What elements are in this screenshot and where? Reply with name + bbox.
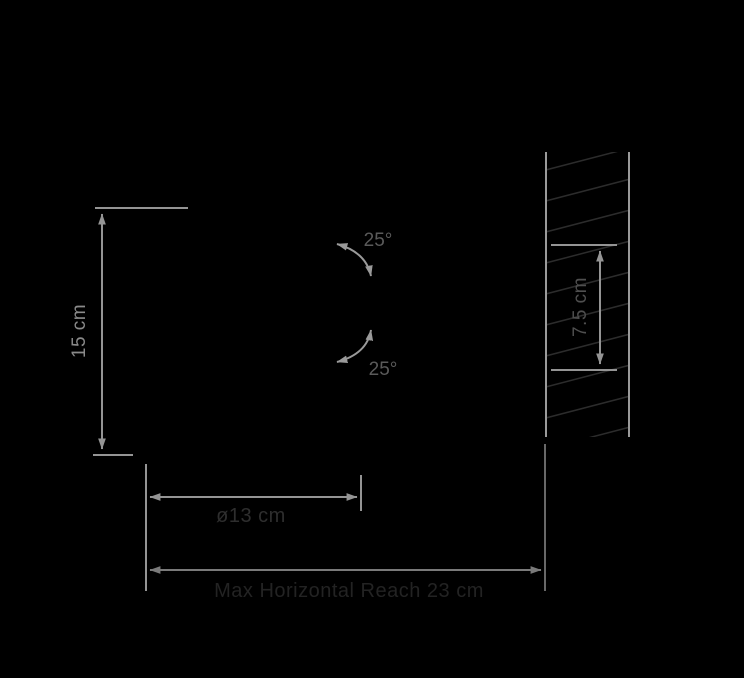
reach-dimension-label: Max Horizontal Reach 23 cm (214, 580, 484, 602)
height-dimension-label: 15 cm (69, 304, 90, 358)
tilt-down-arc-arrow (337, 330, 371, 362)
wall-lamp-dimension-diagram: 15 cm 25° 25° 7.5 cm ø13 cm (0, 0, 744, 678)
bracket-dimension-label: 7.5 cm (570, 277, 591, 337)
tilt-down-angle-label: 25° (369, 359, 398, 380)
diameter-dimension-label: ø13 cm (216, 505, 286, 527)
dimension-drawing-canvas: 15 cm 25° 25° 7.5 cm ø13 cm (0, 0, 744, 678)
tilt-up-angle-label: 25° (364, 230, 393, 251)
